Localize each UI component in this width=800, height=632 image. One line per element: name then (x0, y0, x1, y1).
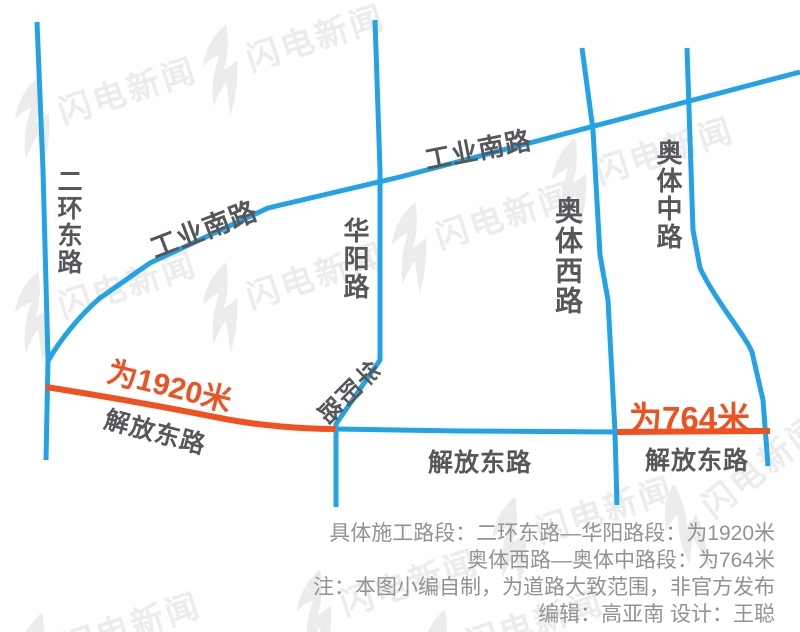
road-map-infographic: 闪电新闻闪电新闻闪电新闻闪电新闻闪电新闻闪电新闻闪电新闻闪电新闻闪电新闻闪电新闻… (0, 0, 800, 632)
road-label-aoti-west: 奥体西路 (553, 196, 581, 316)
caption-line-segment-2: 奥体西路—奥体中路段：为764米 (313, 547, 775, 574)
caption-line-construction-segments: 具体施工路段：二环东路—华阳路段：为1920米 (313, 520, 775, 547)
road-label-jiefang-east-right: 解放东路 (645, 441, 749, 477)
road-label-huayang: 华阳路 (342, 217, 368, 301)
road-label-gongye-south-upper: 工业南路 (421, 120, 534, 177)
road-label-jiefang-east-middle: 解放东路 (428, 443, 532, 479)
road-label-gongye-south-left: 工业南路 (144, 189, 263, 266)
caption-line-disclaimer: 注：本图小编自制，为道路大致范围，非官方发布 (313, 574, 775, 601)
road-label-huayang-jog: 华阳路 (310, 354, 382, 426)
road-label-aoti-middle: 奥体中路 (655, 139, 681, 251)
road-label-erhuan-east: 二环东路 (55, 168, 80, 276)
caption-line-credits: 编辑：高亚南 设计：王聪 (313, 601, 775, 628)
distance-label-segment-2: 为764米 (629, 392, 750, 440)
caption-block: 具体施工路段：二环东路—华阳路段：为1920米 奥体西路—奥体中路段：为764米… (313, 520, 775, 628)
